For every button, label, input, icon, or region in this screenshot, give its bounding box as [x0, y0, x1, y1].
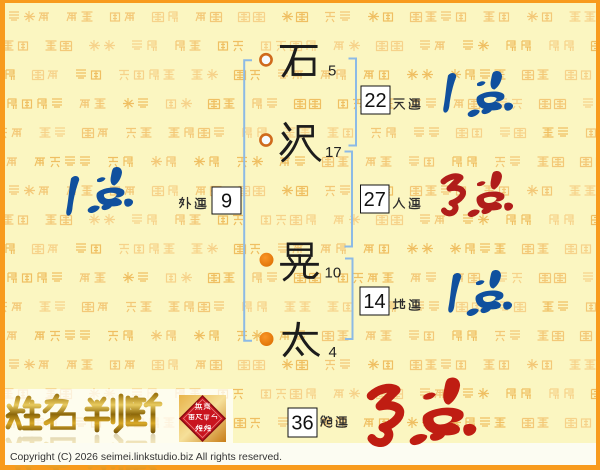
- svg-text:22: 22: [364, 90, 386, 112]
- svg-text:27: 27: [364, 189, 386, 211]
- svg-text:14: 14: [363, 291, 385, 313]
- svg-text:36: 36: [291, 413, 313, 435]
- svg-text:4: 4: [329, 344, 337, 361]
- svg-text:Copyright (C) 2026 seimei.link: Copyright (C) 2026 seimei.linkstudio.biz…: [10, 451, 282, 463]
- svg-text:10: 10: [325, 265, 342, 282]
- svg-text:17: 17: [325, 144, 342, 161]
- svg-text:9: 9: [221, 191, 232, 213]
- svg-text:5: 5: [328, 63, 336, 80]
